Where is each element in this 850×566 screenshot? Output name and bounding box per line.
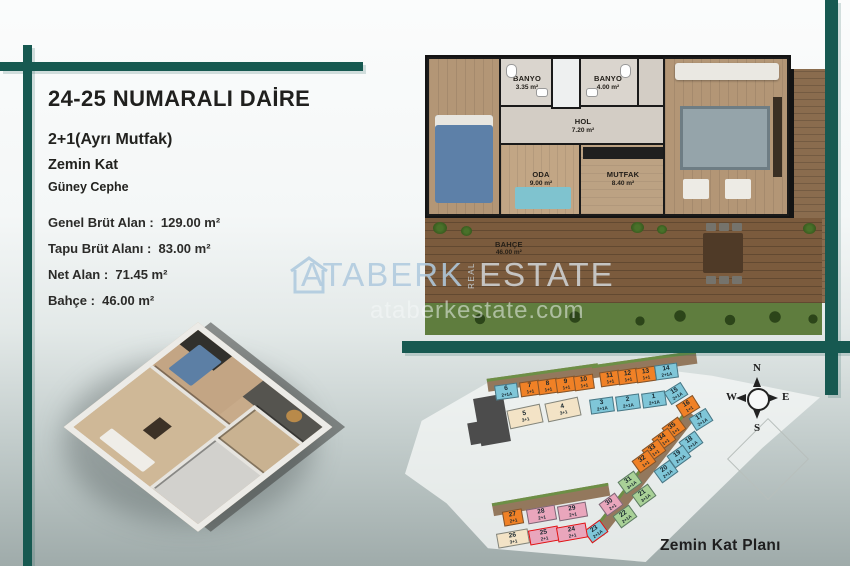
plant-icon — [803, 223, 816, 234]
unit-type: 3+1 — [560, 410, 568, 416]
shaft — [553, 59, 579, 107]
salon-sofa — [675, 63, 779, 80]
accent-bar-left-vertical — [23, 45, 32, 566]
salon-rug — [683, 109, 767, 167]
accent-bar-mid-horizontal — [402, 341, 850, 353]
armchair — [683, 179, 709, 199]
room-name: MUTFAK — [607, 170, 639, 180]
room-area: 4.00 m² — [594, 84, 622, 92]
garden-area: 46.00 m² — [495, 249, 523, 256]
facade-label: Güney Cephe — [48, 180, 129, 194]
room-name: BANYO — [513, 74, 541, 84]
compass-north: N — [753, 362, 761, 374]
plant-icon — [433, 222, 447, 234]
unit-type: 2+1 — [509, 518, 517, 524]
accent-bar-top-horizontal — [0, 62, 363, 71]
page-title: 24-25 NUMARALI DAİRE — [48, 86, 310, 112]
detail-line-1: Tapu Brüt Alanı : 83.00 m² — [48, 241, 220, 256]
garden-grass — [425, 303, 822, 335]
toilet-icon — [507, 65, 516, 77]
sink-icon — [587, 89, 597, 96]
unit-type: 1+1 — [606, 379, 614, 385]
compass-south: S — [754, 422, 760, 434]
unit-type: 1+1 — [642, 375, 650, 381]
unit-type: 1+1 — [562, 385, 570, 391]
apartment-type: 2+1(Ayrı Mutfak) — [48, 131, 172, 149]
unit-type: 2+1A — [661, 372, 672, 378]
plant-icon — [657, 225, 667, 234]
room-label: HOL7.20 m² — [572, 117, 594, 135]
accent-bar-right-vertical — [825, 0, 838, 395]
site-unit-6: 62+1A — [494, 382, 519, 400]
unit-type: 1+1 — [580, 383, 588, 389]
detail-line-0: Genel Brüt Alan : 129.00 m² — [48, 215, 220, 230]
room-name: BANYO — [594, 74, 622, 84]
room-area: 8.40 m² — [607, 180, 639, 188]
unit-type: 2+1 — [569, 512, 577, 518]
oda-sofa — [515, 187, 571, 209]
garden-label: BAHÇE 46.00 m² — [495, 240, 523, 256]
room-name: HOL — [572, 117, 594, 127]
room-label: BANYO4.00 m² — [594, 74, 622, 92]
floor-plan: YATAK ODASI17.90 m²BANYO3.35 m²BANYO4.00… — [425, 55, 822, 335]
compass-needle — [753, 377, 761, 387]
unit-type: 3+1 — [509, 539, 517, 545]
floor-label: Zemin Kat — [48, 157, 118, 173]
unit-type: 1+1 — [526, 389, 534, 395]
unit-type: 2+1A — [501, 392, 512, 398]
room-name: ODA — [530, 170, 552, 180]
unit-type: 3+1 — [522, 417, 530, 423]
dining-table — [703, 233, 743, 273]
compass-rose: N S W E — [726, 362, 790, 436]
chair — [706, 223, 716, 231]
compass-east: E — [782, 391, 789, 403]
compass-needle — [736, 394, 746, 402]
unit-type: 2+1 — [540, 536, 548, 542]
compass-circle — [747, 388, 770, 411]
armchair — [725, 179, 751, 199]
unit-type: 2+1 — [538, 515, 546, 521]
bed — [435, 115, 493, 203]
unit-type: 2+1A — [623, 403, 634, 409]
unit-type: 1+1 — [544, 387, 552, 393]
plant-icon — [461, 226, 472, 236]
site-plan-caption: Zemin Kat Planı — [660, 537, 781, 555]
site-unit-10: 101+1 — [573, 374, 595, 392]
unit-type: 1+1 — [624, 377, 632, 383]
chair — [732, 276, 742, 284]
site-unit-14: 142+1A — [654, 362, 679, 380]
room-label: MUTFAK8.40 m² — [607, 170, 639, 188]
unit-type: 2+1A — [649, 400, 660, 406]
entry-area — [637, 59, 665, 107]
brochure-page: 24-25 NUMARALI DAİRE 2+1(Ayrı Mutfak) Ze… — [0, 0, 850, 566]
room-label: ODA9.00 m² — [530, 170, 552, 188]
room-hol: HOL7.20 m² — [501, 107, 665, 145]
kitchen-appliances — [583, 147, 663, 159]
house-icon — [286, 254, 332, 296]
toilet-icon — [621, 65, 630, 77]
chair — [732, 223, 742, 231]
compass-needle — [768, 394, 778, 402]
chair — [706, 276, 716, 284]
plant-icon — [631, 222, 644, 233]
room-area: 7.20 m² — [572, 127, 594, 135]
unit-type: 2+1 — [568, 533, 576, 539]
apartment-outline: YATAK ODASI17.90 m²BANYO3.35 m²BANYO4.00… — [425, 55, 791, 218]
detail-line-2: Net Alan : 71.45 m² — [48, 267, 220, 282]
garden-name: BAHÇE — [495, 240, 523, 249]
unit-type: 2+1A — [597, 406, 608, 412]
tv-unit — [773, 97, 782, 177]
sink-icon — [537, 89, 547, 96]
garden-deck: BAHÇE 46.00 m² — [425, 218, 822, 303]
isometric-floor-plan — [55, 296, 340, 560]
chair — [719, 276, 729, 284]
chair — [719, 223, 729, 231]
compass-needle — [753, 409, 761, 419]
